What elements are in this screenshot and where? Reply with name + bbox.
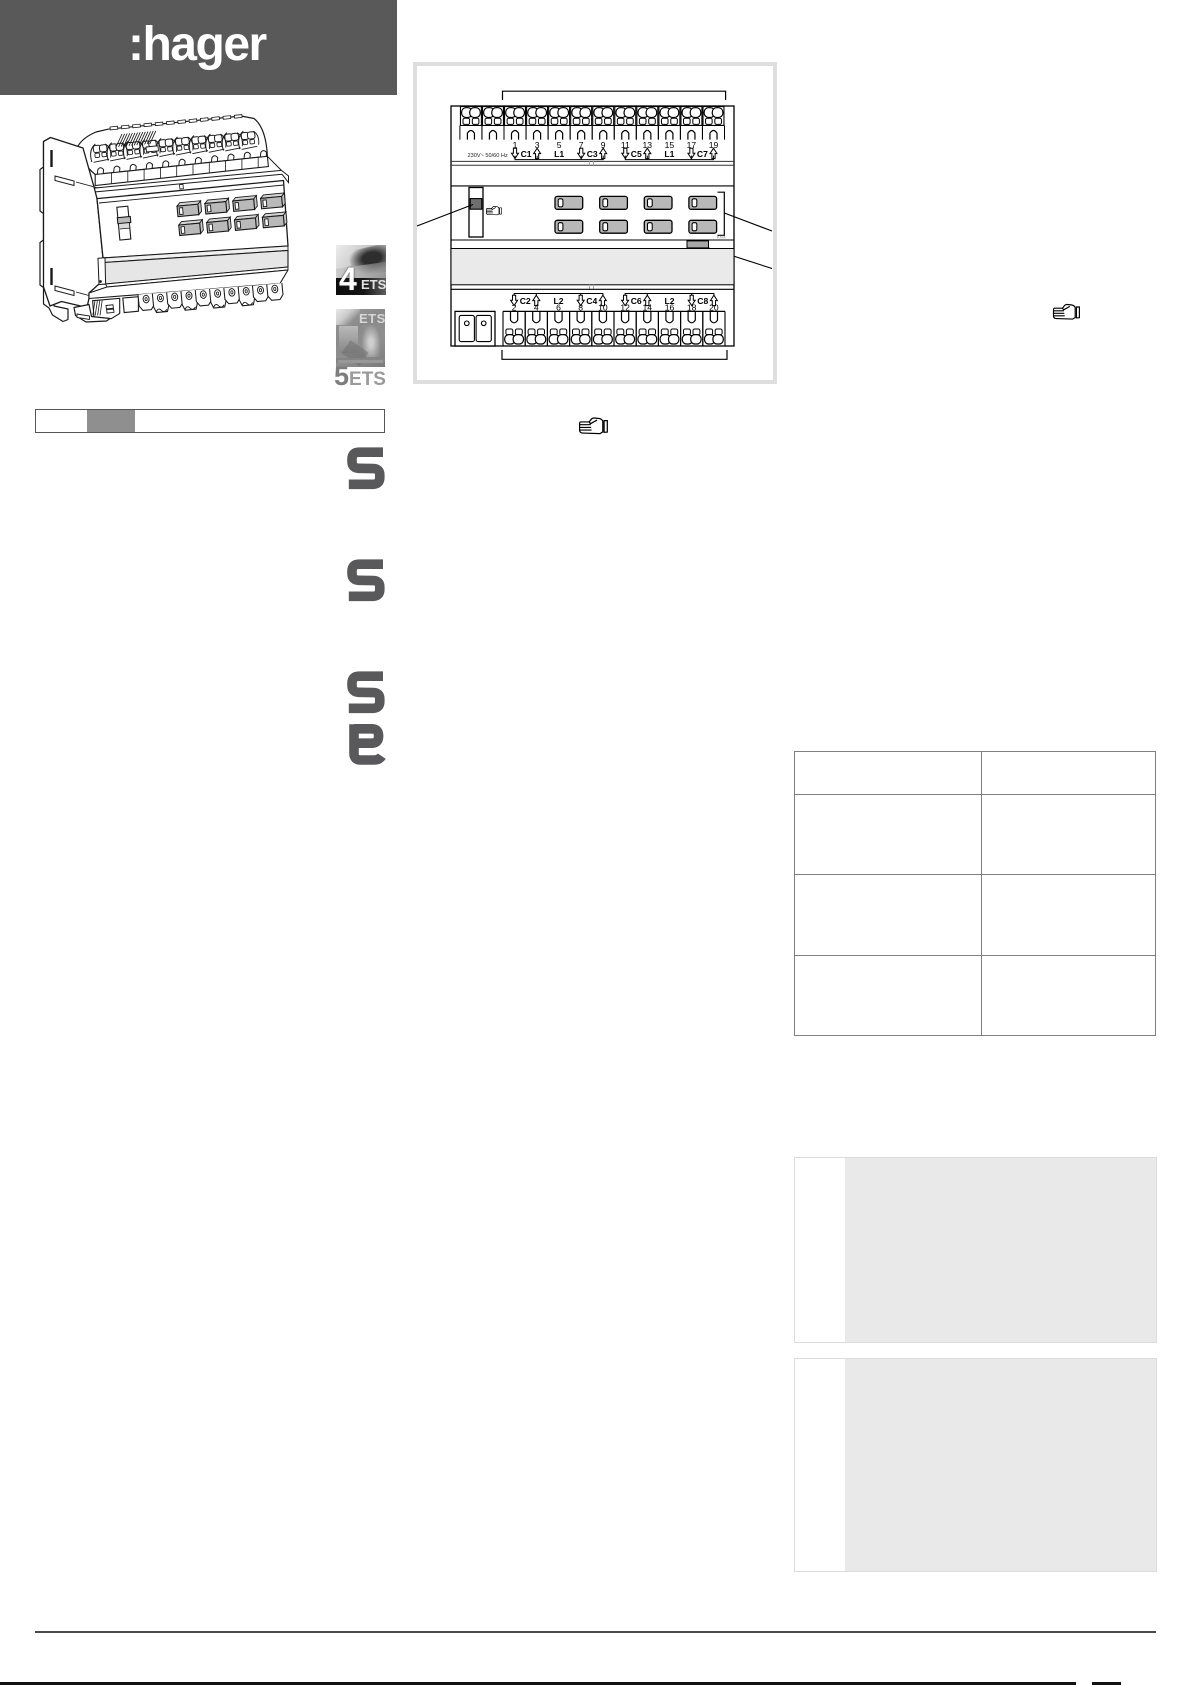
svg-text:C2: C2: [520, 296, 531, 306]
svg-text:C4: C4: [586, 296, 597, 306]
svg-text:C8: C8: [697, 296, 708, 306]
svg-text:L1: L1: [664, 149, 674, 159]
svg-text:230V~ 50/60 Hz: 230V~ 50/60 Hz: [468, 153, 508, 159]
svg-text:C3: C3: [587, 149, 598, 159]
svg-text:L1: L1: [554, 149, 564, 159]
svg-text:C6: C6: [631, 296, 642, 306]
svg-text:C1: C1: [521, 149, 532, 159]
svg-text:C7: C7: [697, 149, 708, 159]
svg-text:KNX: KNX: [717, 235, 726, 240]
svg-text:C5: C5: [631, 149, 642, 159]
